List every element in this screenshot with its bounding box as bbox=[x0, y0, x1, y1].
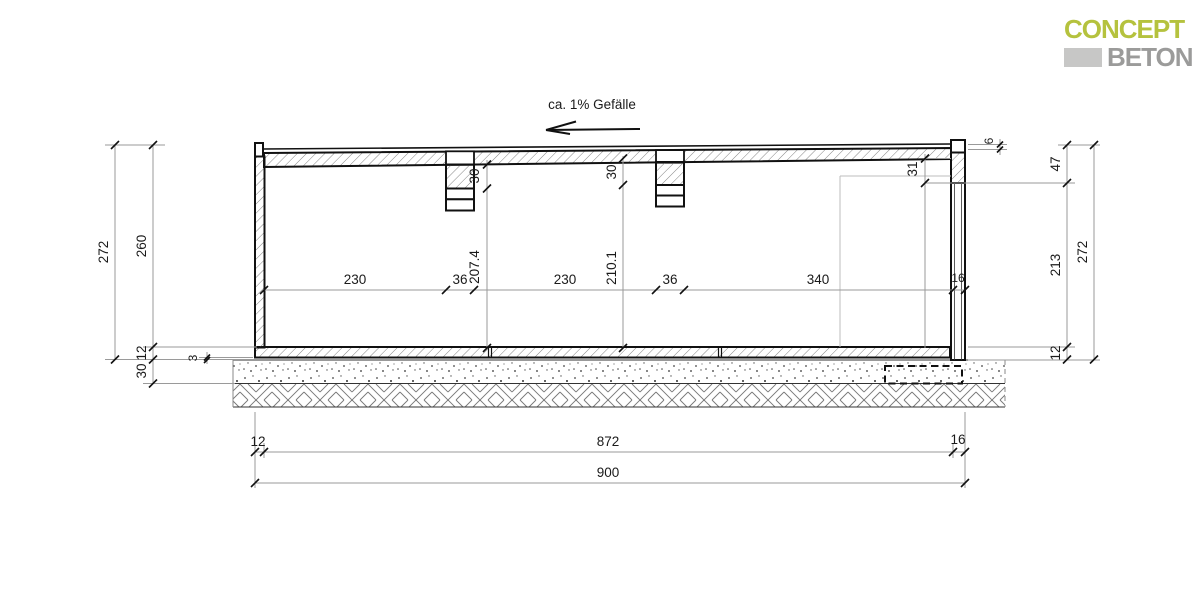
drawing-canvas: ca. 1% Gefälle 272 260 12 30 3 bbox=[0, 0, 1200, 593]
floor-slab bbox=[255, 347, 950, 358]
dims-right: 6 47 213 12 272 31 bbox=[905, 137, 1100, 363]
ground-layers bbox=[233, 360, 1005, 407]
gravel-layer bbox=[233, 384, 1005, 408]
roof-joint-2 bbox=[656, 150, 684, 163]
dim-bottom-overall: 900 bbox=[597, 465, 620, 480]
downstand-beam-2 bbox=[656, 162, 684, 207]
dim-right-overall: 272 bbox=[1075, 241, 1090, 264]
slope-label: ca. 1% Gefälle bbox=[548, 97, 636, 112]
dim-clear1: 207.4 bbox=[467, 250, 482, 284]
dim-wall-thickness: 16 bbox=[951, 271, 965, 285]
slope-arrow-left-icon bbox=[546, 122, 640, 135]
logo-concept-text: CONCEPT bbox=[1064, 16, 1193, 42]
dim-beam1-width: 36 bbox=[452, 272, 467, 287]
dim-right-edge-zone: 47 bbox=[1048, 156, 1063, 171]
dim-edge-beam-depth: 31 bbox=[905, 161, 920, 176]
dim-left-inner: 260 bbox=[134, 235, 149, 258]
dim-clear2: 210.1 bbox=[604, 251, 619, 285]
left-parapet-cap bbox=[255, 143, 263, 157]
roof-slab bbox=[264, 148, 951, 167]
dim-bay1: 230 bbox=[344, 272, 367, 287]
dim-bottom-wall-right: 16 bbox=[950, 432, 965, 447]
dim-bay3: 340 bbox=[807, 272, 830, 287]
dim-left-overall: 272 bbox=[96, 241, 111, 264]
left-wall bbox=[255, 157, 265, 348]
right-edge-beam bbox=[951, 153, 965, 184]
dim-beam1-depth: 30 bbox=[467, 168, 482, 183]
lean-concrete-layer bbox=[233, 360, 1005, 384]
roof-joint-1 bbox=[446, 151, 474, 165]
logo-beton-text: BETON bbox=[1107, 44, 1193, 70]
dim-left-thin: 3 bbox=[186, 354, 200, 361]
dim-right-clear: 213 bbox=[1048, 254, 1063, 277]
dims-left: 272 260 12 30 3 bbox=[96, 141, 257, 388]
right-parapet-cap bbox=[951, 140, 965, 153]
dim-left-base: 30 bbox=[134, 363, 149, 378]
dims-bottom: 12 872 16 900 bbox=[250, 412, 969, 488]
dim-bottom-inner: 872 bbox=[597, 434, 620, 449]
concept-beton-logo: CONCEPT BETON bbox=[1064, 16, 1193, 70]
dim-left-slab: 12 bbox=[134, 345, 149, 360]
hidden-edges bbox=[840, 176, 951, 347]
dim-bottom-wall-left: 12 bbox=[250, 434, 265, 449]
slope-annotation: ca. 1% Gefälle bbox=[546, 97, 640, 134]
dim-beam2-depth: 30 bbox=[604, 164, 619, 179]
logo-block-icon bbox=[1064, 48, 1102, 67]
dim-right-parapet: 6 bbox=[982, 137, 996, 144]
dim-bay2: 230 bbox=[554, 272, 577, 287]
dim-right-slab: 12 bbox=[1048, 345, 1063, 360]
dims-interior: 230 36 230 36 340 16 207.4 210.1 30 30 bbox=[260, 155, 969, 353]
section-drawing: ca. 1% Gefälle 272 260 12 30 3 bbox=[0, 0, 1200, 593]
dim-beam2-width: 36 bbox=[662, 272, 677, 287]
